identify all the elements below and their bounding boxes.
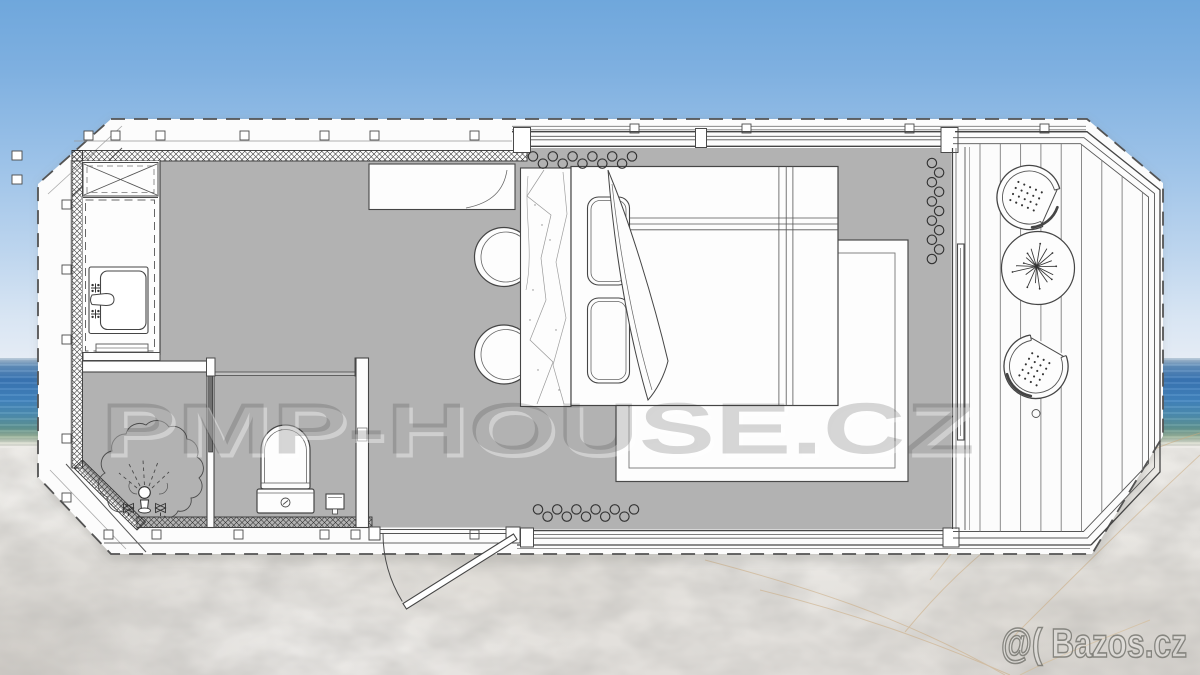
svg-text:PMP-HOUSE.CZ: PMP-HOUSE.CZ xyxy=(100,390,975,470)
svg-text:@( Bazos.cz: @( Bazos.cz xyxy=(1001,620,1187,666)
